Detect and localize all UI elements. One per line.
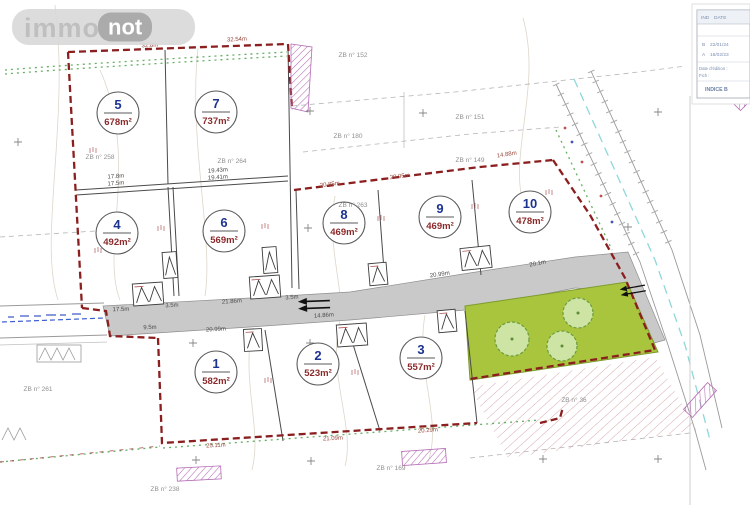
parcel-label: ZB n° 36: [561, 396, 587, 404]
logo-text-immo: immo: [24, 13, 100, 43]
tree-icon: [563, 298, 593, 328]
measurement-label: 14.88m: [496, 150, 517, 159]
measurement-label: 17.5m: [113, 307, 130, 314]
parcel-label: ZB n° 152: [339, 51, 368, 59]
plot-number: 2: [314, 348, 321, 363]
plot-marker-2[interactable]: 2 523m²: [297, 343, 339, 385]
plot-area: 523m²: [304, 368, 331, 379]
titleblock-edition: Date d'édition :: [699, 66, 728, 71]
plot-area: 557m²: [407, 362, 434, 373]
driveway-symbol: [132, 282, 163, 306]
plot-area: 492m²: [103, 237, 130, 248]
titleblock-indice: INDICE B: [705, 87, 728, 93]
driveway-symbol: [368, 262, 388, 285]
measurement-label: 9.5m: [143, 325, 157, 331]
plot-area: 469m²: [426, 221, 453, 232]
titleblock-row-date: 22/01/24: [710, 42, 729, 48]
measurement-label: 17.8m: [107, 173, 124, 180]
street-text-marks: [8, 314, 81, 317]
parcel-label: ZB n° 151: [456, 113, 485, 121]
plot-number: 9: [436, 201, 443, 216]
plot-area: 469m²: [330, 227, 357, 238]
plot-area: 678m²: [104, 117, 131, 128]
plot-number: 5: [114, 97, 121, 112]
measurement-label: 32.54m: [227, 36, 247, 43]
plot-number: 7: [212, 96, 219, 111]
measurement-label: 20.95m: [390, 173, 411, 181]
titleblock-col-date: DATE: [714, 15, 726, 21]
parcel-label: ZB n° 180: [334, 132, 363, 140]
plot-marker-3[interactable]: 3 557m²: [400, 337, 442, 379]
measurement-label: 17.5m: [107, 180, 124, 187]
parcel-label: ZB n° 258: [86, 153, 115, 161]
survey-point-dots: [564, 127, 614, 224]
plan-viewer: 1 582m² 2 523m² 3 557m² 4 492m² 5 678m²: [0, 0, 750, 506]
plot-marker-6[interactable]: 6 569m²: [203, 210, 245, 252]
street-centerline: [2, 318, 104, 322]
plot-number: 3: [417, 342, 424, 357]
driveway-symbol: [243, 329, 262, 352]
tree-icon: [495, 322, 529, 356]
plot-number: 10: [523, 196, 537, 211]
plot-area: 737m²: [202, 116, 229, 127]
driveway-symbol: [162, 252, 178, 279]
parcel-label: ZB n° 169: [377, 464, 406, 472]
parcel-label: ZB n° 149: [456, 156, 485, 164]
plot-marker-9[interactable]: 9 469m²: [419, 196, 461, 238]
tree-icon: [547, 331, 577, 361]
plot-marker-5[interactable]: 5 678m²: [97, 92, 139, 134]
measurement-label: 20.99m: [206, 326, 226, 333]
titleblock-file: Fich :: [699, 73, 710, 78]
driveway-symbol: [249, 275, 280, 299]
driveway-symbol: [437, 309, 457, 332]
left-street: [0, 303, 107, 345]
plot-marker-4[interactable]: 4 492m²: [96, 212, 138, 254]
measurement-label: 20.29m: [418, 427, 438, 434]
plot-number: 8: [340, 207, 347, 222]
titleblock: IND DATE B 22/01/24 A 15/02/23 Date d'éd…: [692, 4, 750, 104]
parcel-label: ZB n° 261: [24, 385, 53, 393]
measurement-label: 25.11m: [206, 442, 226, 449]
driveway-symbol: [262, 247, 278, 274]
plot-marker-7[interactable]: 7 737m²: [195, 91, 237, 133]
plot-marker-1[interactable]: 1 582m²: [195, 351, 237, 393]
plot-number: 6: [220, 215, 227, 230]
plot-marker-10[interactable]: 10 478m²: [509, 191, 551, 233]
plot-number: 1: [212, 356, 219, 371]
plot-number: 4: [113, 217, 121, 232]
plot-area: 478m²: [516, 216, 543, 227]
immonot-logo[interactable]: immo not: [12, 9, 195, 45]
driveway-symbol: [460, 245, 492, 270]
titleblock-row-ind: B: [702, 42, 705, 48]
measurement-label: 21.09m: [323, 435, 343, 442]
parcel-label: ZB n° 238: [151, 485, 180, 493]
titleblock-col-ind: IND: [701, 15, 710, 21]
plot-area: 569m²: [210, 235, 237, 246]
measurement-label: 3.5m: [285, 295, 299, 302]
site-plan: 1 582m² 2 523m² 3 557m² 4 492m² 5 678m²: [0, 0, 750, 506]
plot-area: 582m²: [202, 376, 229, 387]
parcel-label: ZB n° 264: [218, 157, 247, 165]
logo-text-not: not: [108, 15, 143, 40]
driveway-symbol: [336, 323, 367, 347]
parcel-label: ZB n° 263: [339, 201, 368, 209]
titleblock-row-date: 15/02/23: [710, 52, 729, 58]
measurement-label: 20.85m: [320, 181, 341, 189]
measurement-label: 3.5m: [165, 303, 179, 310]
